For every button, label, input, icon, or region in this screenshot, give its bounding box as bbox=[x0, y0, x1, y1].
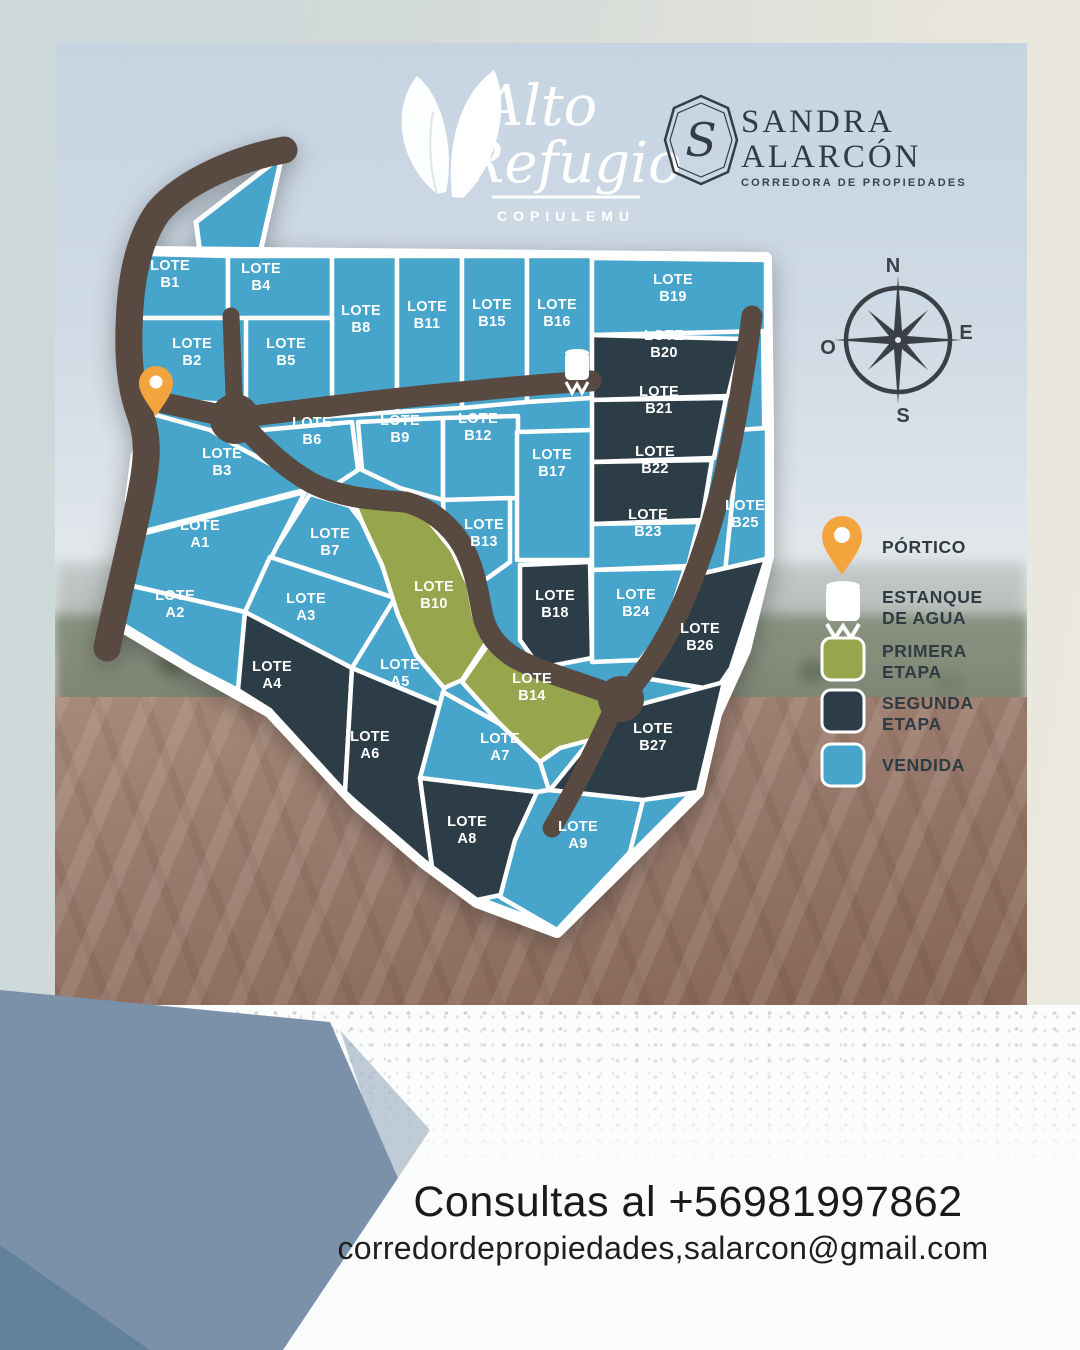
lot-map: LOTEB1LOTEB4LOTEB8LOTEB11LOTEB15LOTEB16L… bbox=[107, 150, 768, 932]
legend-estanque-label-1: ESTANQUE bbox=[882, 587, 983, 607]
compass-e: E bbox=[959, 322, 972, 344]
brand-alto-refugio: Alto Refugio COPIULEMU bbox=[402, 70, 682, 224]
legend-vendida-label: VENDIDA bbox=[882, 755, 965, 775]
legend-vendida-swatch bbox=[822, 744, 864, 786]
brand-line1: Alto bbox=[478, 74, 598, 139]
realtor-tagline: CORREDORA DE PROPIEDADES bbox=[741, 177, 967, 189]
water-tank-icon bbox=[565, 349, 589, 393]
legend-water-tank-icon bbox=[826, 581, 860, 638]
compass-n: N bbox=[886, 255, 900, 277]
legend-primera-label-2: ETAPA bbox=[882, 662, 942, 682]
roundabout-west bbox=[210, 394, 260, 444]
contact-phone: Consultas al +56981997862 bbox=[348, 1178, 1028, 1227]
realtor-name1: SANDRA bbox=[741, 104, 895, 140]
legend-segunda-swatch bbox=[822, 690, 864, 732]
roundabout-south bbox=[598, 676, 644, 722]
map-legend: PÓRTICO ESTANQUE DE AGUA PRIMERA ETAPA S… bbox=[822, 516, 983, 786]
legend-estanque-label-2: DE AGUA bbox=[882, 608, 966, 628]
site-map-canvas: Alto Refugio COPIULEMU S SANDRA ALARCÓN … bbox=[0, 0, 1080, 1350]
legend-portico-pin-icon bbox=[822, 516, 862, 575]
legend-segunda-label-2: ETAPA bbox=[882, 714, 942, 734]
legend-primera-label-1: PRIMERA bbox=[882, 641, 967, 661]
legend-portico-label: PÓRTICO bbox=[882, 536, 966, 557]
legend-segunda-label-1: SEGUNDA bbox=[882, 693, 974, 713]
compass-o: O bbox=[820, 337, 836, 359]
realtor-name2: ALARCÓN bbox=[741, 137, 922, 175]
contact-email: corredordepropiedades,salarcon@gmail.com bbox=[323, 1230, 1003, 1267]
poster-root: { "header": { "brand": {"line1": "Alto",… bbox=[0, 0, 1080, 1350]
brand-sub: COPIULEMU bbox=[497, 208, 635, 224]
monogram-letter: S bbox=[685, 113, 717, 167]
compass-s: S bbox=[896, 405, 909, 427]
legend-primera-swatch bbox=[822, 638, 864, 680]
compass-rose-icon: N E S O bbox=[820, 255, 972, 427]
realtor-logo: S SANDRA ALARCÓN CORREDORA DE PROPIEDADE… bbox=[665, 96, 967, 189]
brand-line2: Refugio bbox=[461, 131, 682, 196]
